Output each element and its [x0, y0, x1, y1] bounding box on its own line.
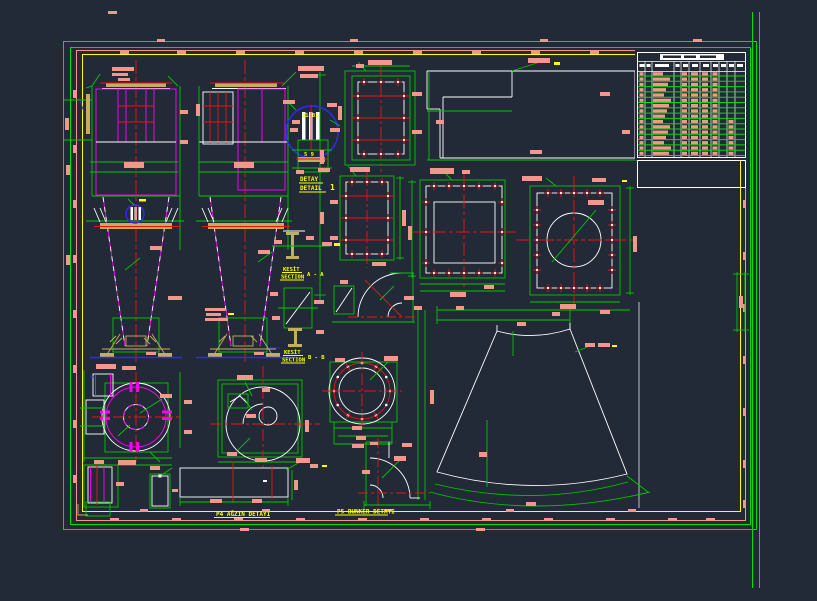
detail-dim-top: 21 81 — [302, 113, 319, 119]
section-b-label-tr: KESİT — [284, 349, 301, 356]
label-p5: P5 BUNKER DETAYI — [337, 509, 395, 516]
section-a-ref: A - A — [307, 272, 324, 278]
detail-label-tr: DETAY — [300, 176, 318, 183]
section-b-ref: B - B — [308, 355, 325, 361]
label-p4: P4 AĞZIN DETAYI — [216, 511, 271, 518]
section-a-label-tr: KESİT — [283, 266, 300, 273]
cad-drawing-canvas[interactable]: 21 81 5 9 DETAY DETAIL 1 — [0, 0, 817, 601]
detail-ref-number: 1 — [330, 183, 335, 192]
detail-dim-mid: 5 9 — [304, 152, 314, 158]
cyclone-fabrication-drawing: 21 81 5 9 DETAY DETAIL 1 — [0, 0, 817, 601]
detail-label-en: DETAIL — [300, 185, 322, 192]
